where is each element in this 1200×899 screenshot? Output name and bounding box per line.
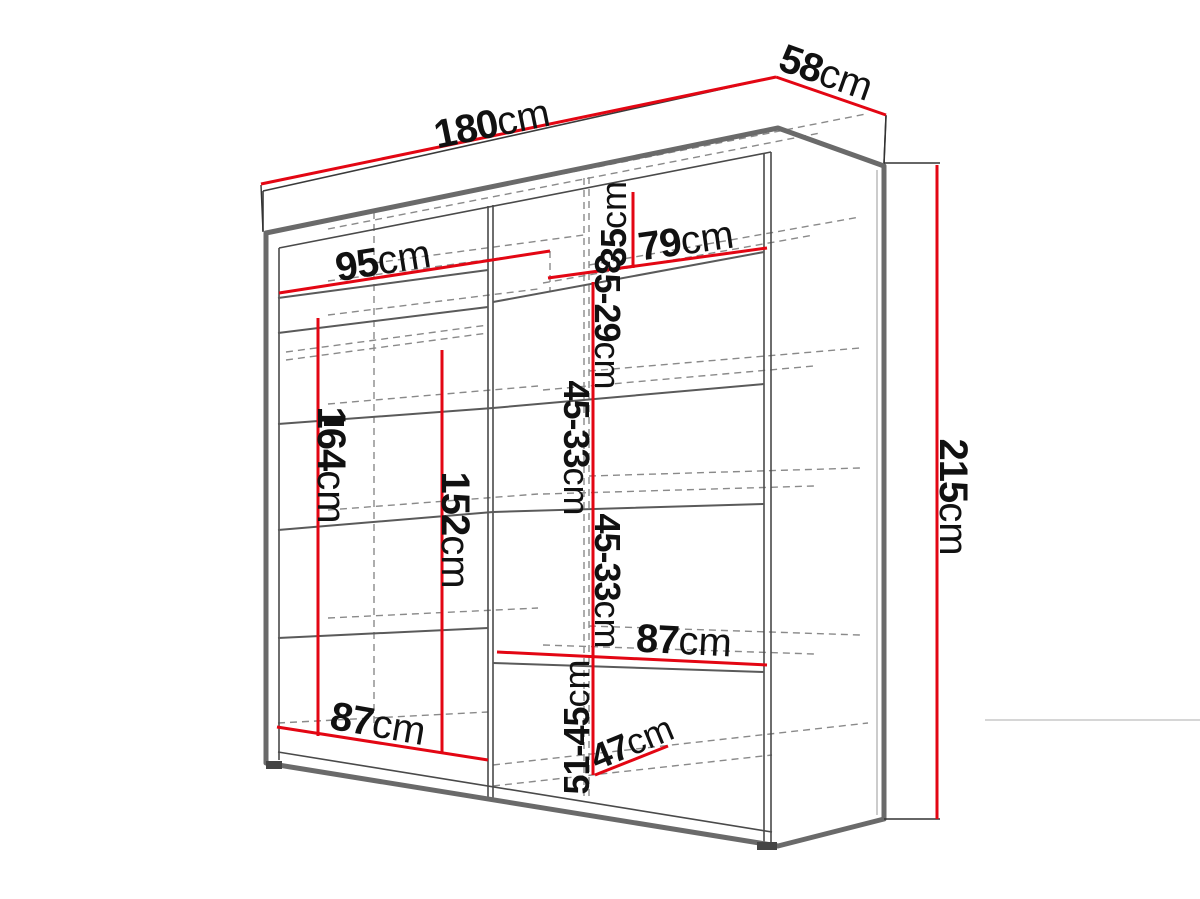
wardrobe-top-panel bbox=[263, 77, 886, 231]
dim-shelf-gap-top-label: 35-29cm bbox=[589, 254, 625, 389]
dim-lower-shelf-label: 87cm bbox=[635, 619, 733, 664]
dim-height-label: 215cm bbox=[933, 438, 973, 555]
dim-shelf-gap-mid-label: 45-33cm bbox=[558, 380, 594, 515]
dim-inner-height-label: 152cm bbox=[435, 471, 475, 588]
dim-bottom-gap-label: 51-45cm bbox=[559, 659, 595, 794]
dim-hanging-height-label: 164cm bbox=[311, 406, 351, 523]
wardrobe-dimension-diagram: 180cm 58cm 215cm 95cm 79cm 35cm 35-29cm … bbox=[0, 0, 1200, 899]
dim-shelf-gap-lower-label: 45-33cm bbox=[589, 513, 625, 648]
